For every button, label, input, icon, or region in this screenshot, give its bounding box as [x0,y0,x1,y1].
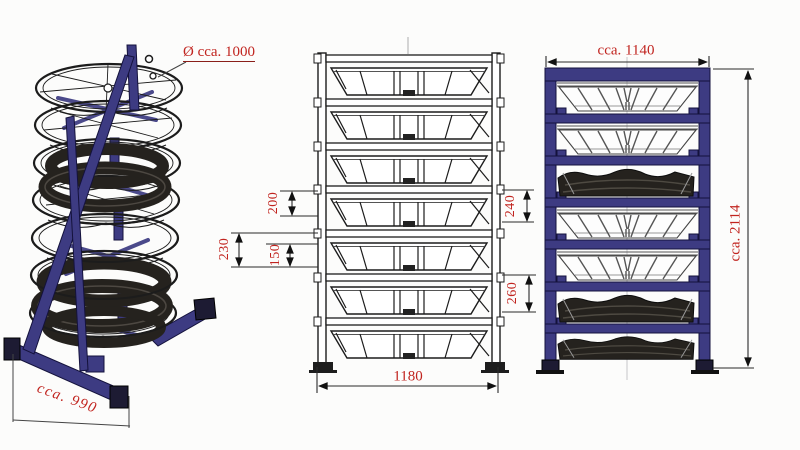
dim-150-label: 150 [269,244,283,267]
side-view [536,57,719,380]
dim-260-label: 260 [506,282,520,305]
dim-230-label: 230 [218,238,232,261]
isometric-view [4,45,216,408]
diameter-label: Ø cca. 1000 [183,45,255,62]
front-view [309,37,509,373]
page: { "document": { "type": "technical drawi… [0,0,800,450]
height-2114-label: cca. 2114 [729,205,744,262]
width-1180-label: 1180 [393,370,422,385]
width-1140-label: cca. 1140 [598,44,655,59]
dim-200-label: 200 [267,192,281,215]
dim-240-label: 240 [504,195,518,218]
